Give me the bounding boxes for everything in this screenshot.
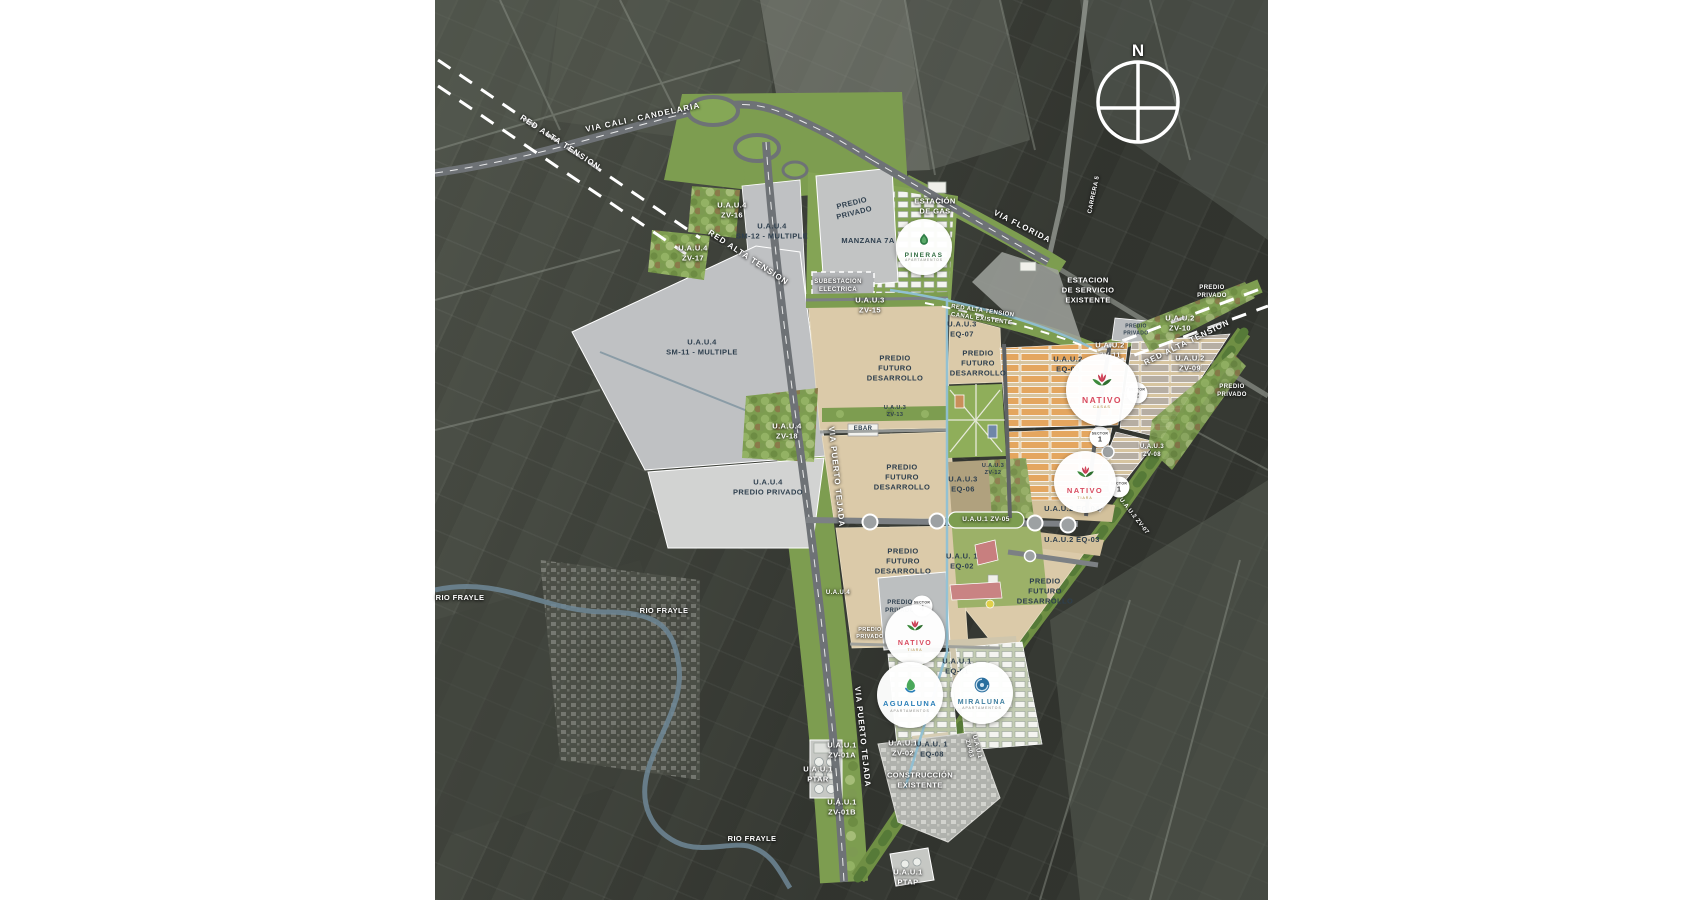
miraluna-subtitle: APARTAMENTOS — [962, 706, 1001, 710]
miraluna-logo: MIRALUNA APARTAMENTOS — [951, 662, 1013, 724]
masterplan-canvas: VIA CALI - CANDELARIA RED ALTA TENSION R… — [0, 0, 1701, 900]
miraluna-moon-icon — [973, 676, 991, 699]
parcel-uau4-predio-privado — [648, 458, 824, 548]
sector-number: 1 — [1117, 485, 1121, 493]
nativo-casas-subtitle: CASAS — [1093, 405, 1111, 410]
nativo-casas-logo: NATIVO CASAS — [1066, 354, 1138, 426]
nativo-tulip-icon — [1090, 371, 1114, 396]
parcel-predio-futuro-2 — [822, 432, 956, 520]
sector-1-badge: SECTOR 1 — [1090, 427, 1111, 448]
parcel-manzana-7a — [816, 168, 898, 288]
nativo-tulip-icon — [1075, 464, 1096, 487]
agualuna-subtitle: APARTAMENTOS — [890, 709, 929, 713]
road-carrera5 — [1048, 0, 1086, 262]
masterplan-map — [435, 0, 1268, 900]
nativo-tiara-2-name: NATIVO — [898, 640, 932, 648]
nativo-tiara-logo-2: NATIVO TIARA — [885, 605, 945, 665]
nativo-tiara-logo: NATIVO TIARA — [1054, 451, 1116, 513]
nativo-tiara-name: NATIVO — [1067, 487, 1103, 495]
pineras-logo: PINERAS APARTAMENTOS — [896, 219, 952, 275]
agualuna-name: AGUALUNA — [883, 700, 937, 708]
nativo-tulip-icon — [905, 618, 925, 640]
nativo-tiara-subtitle: TIARA — [1077, 496, 1092, 500]
agualuna-logo: AGUALUNA APARTAMENTOS — [877, 662, 943, 728]
ptap-plant — [890, 848, 934, 886]
miraluna-name: MIRALUNA — [958, 699, 1007, 707]
pineras-subtitle: APARTAMENTOS — [905, 259, 943, 263]
nativo-tiara-2-subtitle: TIARA — [908, 648, 923, 652]
pineras-leaf-icon — [916, 232, 932, 252]
agualuna-leaf-icon — [900, 677, 920, 700]
nativo-casas-name: NATIVO — [1082, 396, 1122, 405]
sector-number: 1 — [1098, 435, 1102, 443]
